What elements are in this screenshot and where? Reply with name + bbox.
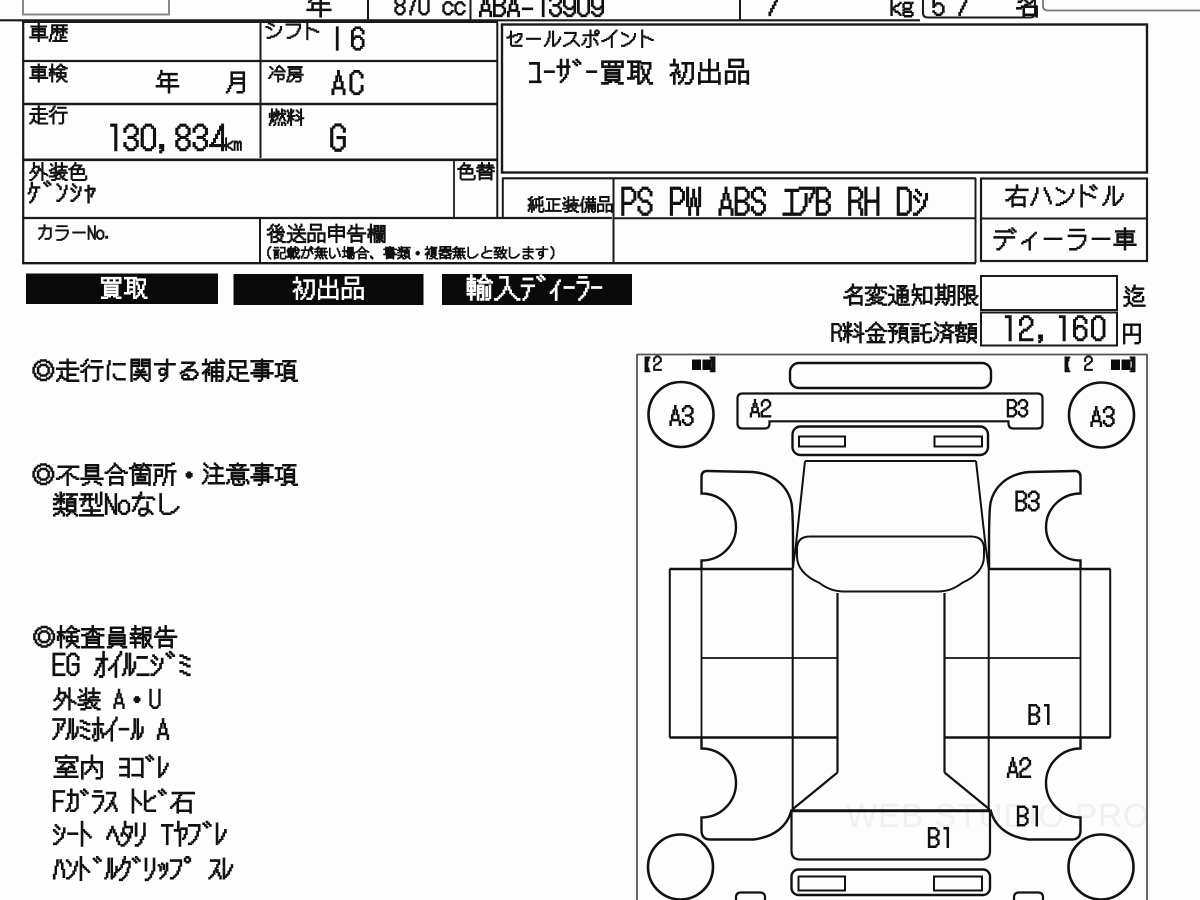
svg-text:WEB STUDIO PRO: WEB STUDIO PRO	[846, 797, 1150, 834]
